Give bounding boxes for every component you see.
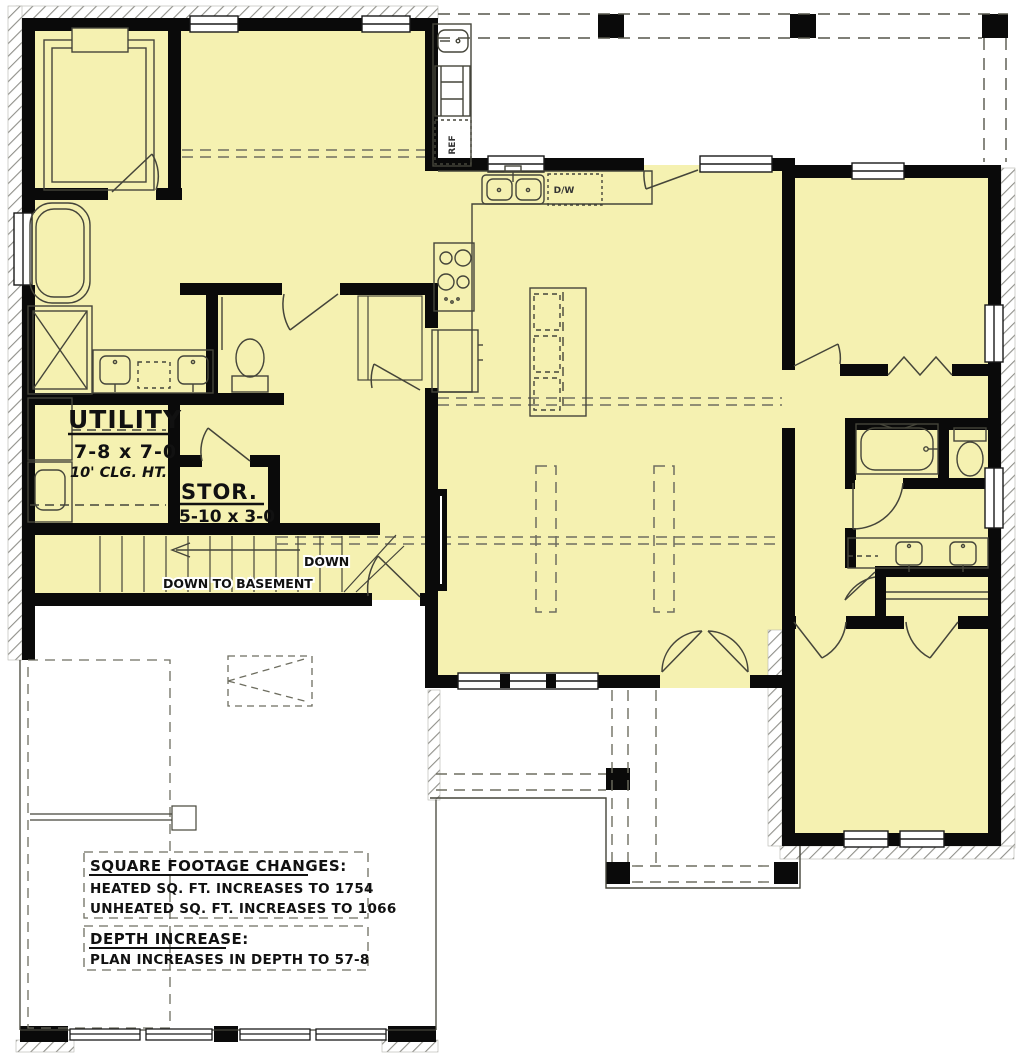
depth-note-title: DEPTH INCREASE: [90,930,249,948]
utility-ceiling: 10' CLG. HT. [70,465,167,481]
stairs-down-label: DOWN [304,554,349,569]
note-boxes: SQUARE FOOTAGE CHANGES: HEATED SQ. FT. I… [84,852,397,970]
window-icon [852,163,904,179]
window-icon [985,305,1003,362]
column-icon [598,14,624,38]
column-icon [774,862,798,884]
utility-dims: 7-8 x 7-0 [74,441,177,463]
sqft-note-line1: HEATED SQ. FT. INCREASES TO 1754 [90,881,374,897]
floor-plan-drawing: UTILITY 7-8 x 7-0 10' CLG. HT. STOR. 5-1… [0,0,1024,1062]
attic-access-icon [228,656,312,706]
column-icon [790,14,816,38]
depth-note-line1: PLAN INCREASES IN DEPTH TO 57-8 [90,952,370,968]
floor-plan: UTILITY 7-8 x 7-0 10' CLG. HT. STOR. 5-1… [0,0,1024,1062]
storage-label: STOR. [181,480,258,504]
refrigerator-label: REF [448,135,458,154]
storage-dims: 5-10 x 3-0 [179,507,275,527]
outdoor-sink-icon [438,30,468,52]
utility-label: UTILITY [68,405,182,434]
beam-line [30,806,196,830]
window-icon [488,156,544,172]
window-icon [362,16,410,32]
garage [20,656,436,1040]
column-icon [606,862,630,884]
window-icon [700,156,772,172]
window-icon [190,16,238,32]
column-icon [606,768,630,790]
window-icon [900,831,944,847]
fireplace-icon [430,489,447,591]
window-icon [985,468,1003,528]
stairs-label: DOWN TO BASEMENT [163,576,313,591]
covered-porch-top [438,14,1008,162]
window-icon [844,831,888,847]
window-icon [458,673,598,689]
dishwasher-label: D/W [554,186,575,196]
sqft-note-title: SQUARE FOOTAGE CHANGES: [90,857,347,875]
grill-icon [435,66,470,116]
sqft-note-line2: UNHEATED SQ. FT. INCREASES TO 1066 [90,901,397,917]
column-icon [982,14,1008,38]
